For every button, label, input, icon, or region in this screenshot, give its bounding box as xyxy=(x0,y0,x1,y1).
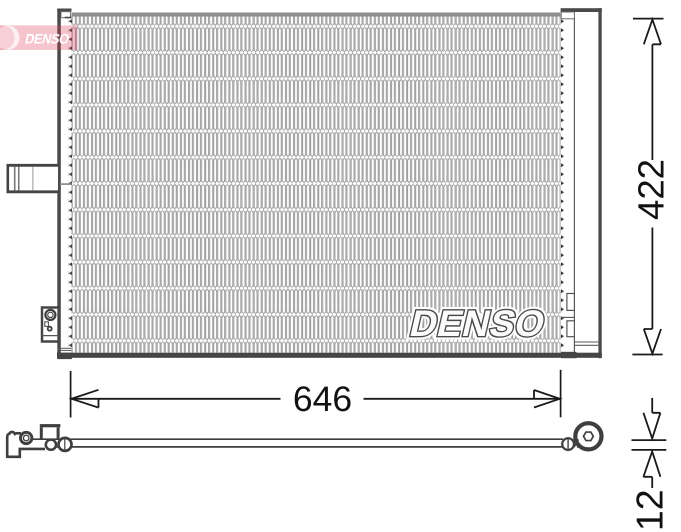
svg-text:12: 12 xyxy=(629,489,671,531)
svg-text:DENSO: DENSO xyxy=(24,31,71,46)
svg-text:646: 646 xyxy=(293,379,352,419)
svg-text:DENSO: DENSO xyxy=(406,303,550,344)
svg-text:422: 422 xyxy=(631,159,672,220)
